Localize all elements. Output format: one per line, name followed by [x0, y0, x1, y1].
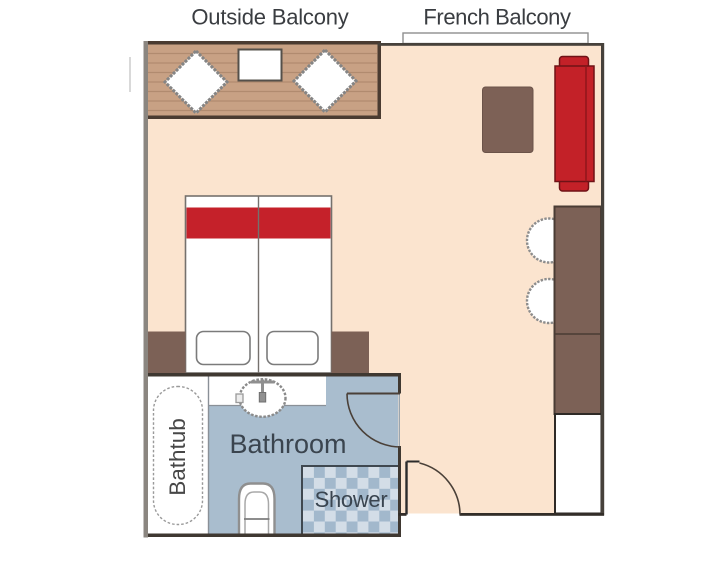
- svg-text:Bathtub: Bathtub: [165, 418, 190, 496]
- svg-text:Shower: Shower: [315, 487, 388, 512]
- svg-text:Bathroom: Bathroom: [229, 429, 346, 459]
- svg-text:Outside Balcony: Outside Balcony: [191, 5, 348, 30]
- svg-text:French Balcony: French Balcony: [423, 5, 571, 30]
